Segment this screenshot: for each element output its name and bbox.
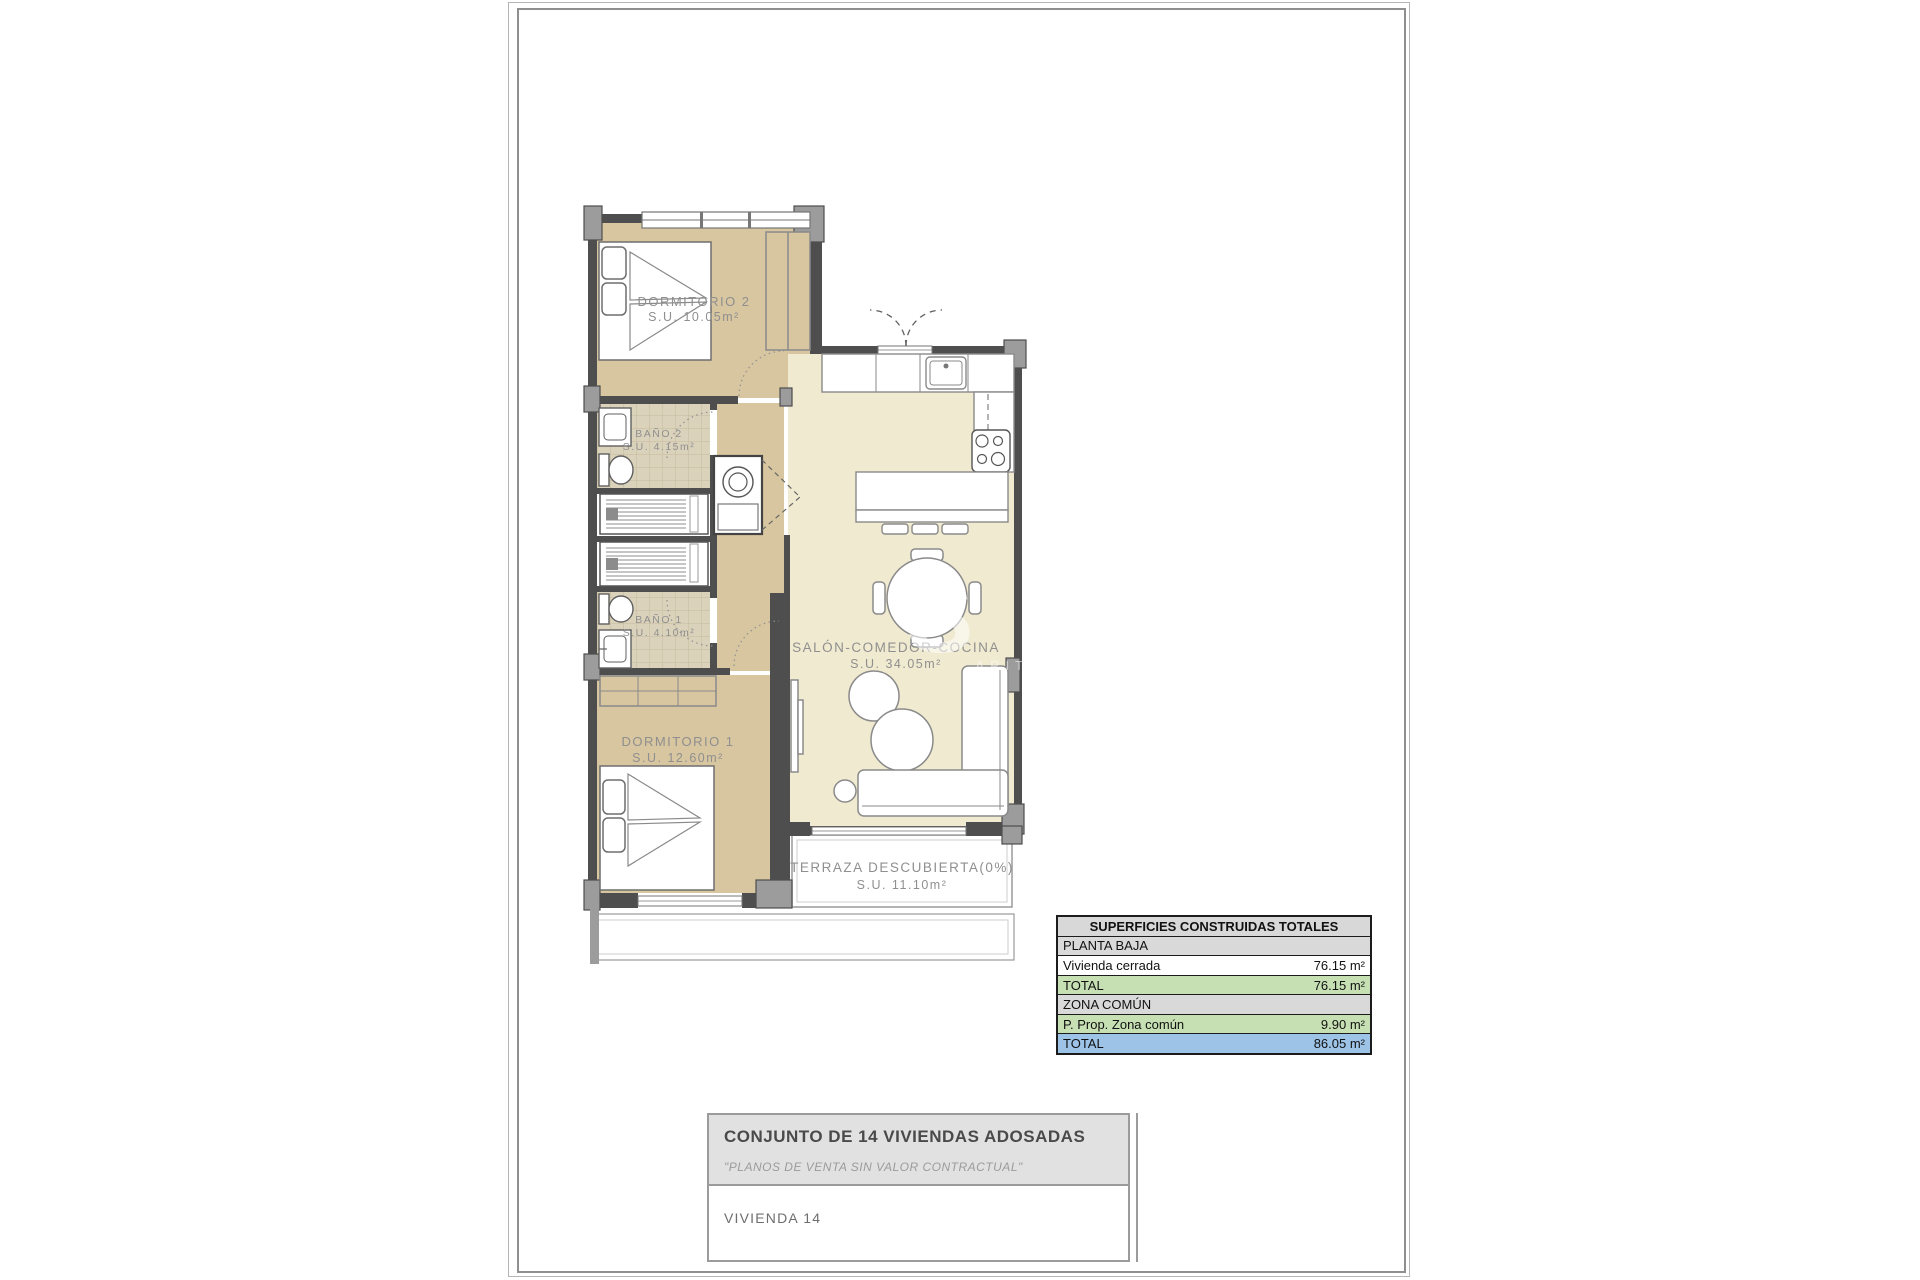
surfaces-table: SUPERFICIES CONSTRUIDAS TOTALES PLANTA B…: [1056, 915, 1372, 1055]
chair-icon: [873, 582, 885, 614]
stool-icon: [942, 524, 968, 534]
entry-door-leaf-left: [870, 310, 906, 346]
table-row-vivienda-cerrada: Vivienda cerrada 76.15 m²: [1058, 955, 1370, 975]
room-label-bathroom2: BAÑO 2: [635, 427, 683, 440]
title-block-header: CONJUNTO DE 14 VIVIENDAS ADOSADAS "PLANO…: [709, 1115, 1128, 1186]
armchair-icon: [871, 709, 933, 771]
room-label-bedroom1: DORMITORIO 1: [621, 734, 734, 749]
breakfast-bar-icon: [856, 472, 1008, 510]
row-label: P. Prop. Zona común: [1063, 1017, 1184, 1032]
unit-label: VIVIENDA 14: [709, 1186, 1128, 1226]
pillow-icon: [603, 780, 625, 814]
watermark-text: ARITY HO: [975, 658, 1084, 673]
tv-unit-icon: [791, 680, 798, 772]
room-area-bedroom2: S.U. 10.05m²: [648, 310, 740, 324]
patio-strip: [592, 914, 1014, 960]
room-area-terrace: S.U. 11.10m²: [857, 878, 948, 892]
surfaces-table-title: SUPERFICIES CONSTRUIDAS TOTALES: [1058, 917, 1370, 936]
room-area-bathroom2: S.U. 4.15m²: [623, 441, 696, 453]
toilet-icon: [599, 594, 609, 624]
pillow-icon: [602, 283, 626, 315]
disclaimer-text: "PLANOS DE VENTA SIN VALOR CONTRACTUAL": [724, 1160, 1113, 1174]
shower-door: [690, 544, 698, 582]
table-row-total-planta: TOTAL 76.15 m²: [1058, 975, 1370, 995]
row-label: ZONA COMÚN: [1063, 997, 1151, 1012]
window-living-south: [812, 827, 966, 835]
shower-door: [690, 496, 698, 532]
row-value: 76.15 m²: [1314, 958, 1365, 973]
kitchen-counter-north: [822, 354, 1014, 392]
entry-door-dashed: [870, 310, 942, 346]
room-area-bathroom1: S.U. 4.10m²: [623, 627, 696, 639]
title-block: CONJUNTO DE 14 VIVIENDAS ADOSADAS "PLANO…: [707, 1113, 1130, 1262]
room-label-bedroom2: DORMITORIO 2: [637, 294, 750, 309]
stool-icon: [912, 524, 938, 534]
breakfast-bar-ledge: [856, 510, 1008, 522]
toilet-icon: [599, 454, 609, 486]
row-label: TOTAL: [1063, 1036, 1104, 1051]
row-value: 86.05 m²: [1314, 1036, 1365, 1051]
table-row-prop-zona-comun: P. Prop. Zona común 9.90 m²: [1058, 1014, 1370, 1034]
row-label: PLANTA BAJA: [1063, 938, 1148, 953]
window-kitchen-north: [878, 346, 932, 354]
shower-drain: [606, 558, 618, 570]
room-area-bedroom1: S.U. 12.60m²: [632, 751, 724, 765]
project-title: CONJUNTO DE 14 VIVIENDAS ADOSADAS: [724, 1127, 1113, 1147]
row-value: 9.90 m²: [1321, 1017, 1365, 1032]
row-label: Vivienda cerrada: [1063, 958, 1160, 973]
row-label: TOTAL: [1063, 978, 1104, 993]
table-row-planta-baja: PLANTA BAJA: [1058, 936, 1370, 956]
entry-door-leaf-right: [906, 310, 942, 346]
window-bedroom2-north: [642, 212, 810, 228]
pillow-icon: [602, 247, 626, 279]
table-row-total-general: TOTAL 86.05 m²: [1058, 1033, 1370, 1053]
sofa-icon: [858, 770, 1008, 816]
row-value: 76.15 m²: [1314, 978, 1365, 993]
laundry-closet: [714, 456, 800, 534]
table-row-zona-comun: ZONA COMÚN: [1058, 994, 1370, 1014]
title-block-divider: [1136, 1113, 1138, 1262]
tv-unit-icon: [798, 700, 803, 754]
watermark: S H ARITY HO: [907, 562, 1104, 674]
floor-plan-drawing: DORMITORIO 2 S.U. 10.05m² BAÑO 2 S.U. 4.…: [0, 0, 1920, 1280]
shower-drain: [606, 508, 618, 520]
room-label-terrace: TERRAZA DESCUBIERTA(0%): [790, 860, 1014, 875]
side-table-icon: [834, 780, 856, 802]
washing-machine-icon: [723, 467, 753, 497]
stool-icon: [882, 524, 908, 534]
window-bedroom1-south: [638, 896, 742, 906]
room-label-bathroom1: BAÑO 1: [635, 613, 683, 626]
pillow-icon: [603, 818, 625, 852]
